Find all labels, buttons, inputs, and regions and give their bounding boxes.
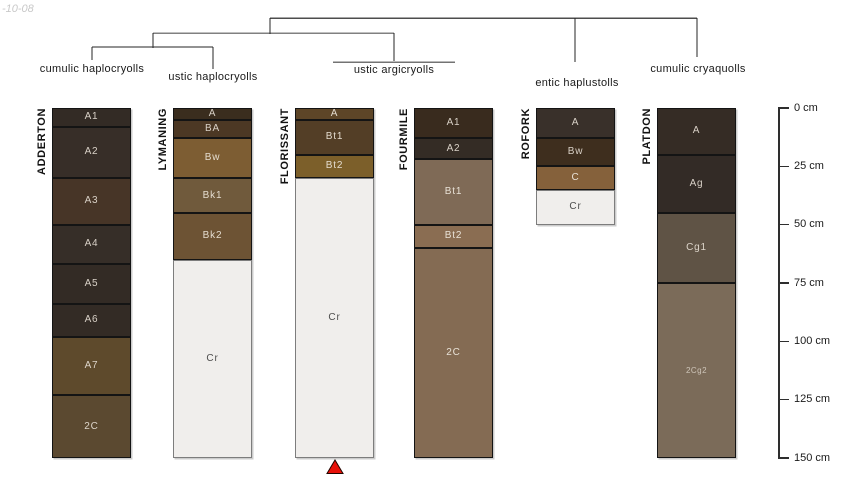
horizon-label: Bw (568, 147, 584, 157)
profile-column-lymaning: ABABwBk1Bk2Cr (173, 108, 252, 458)
horizon-label: 2Cg2 (686, 367, 707, 375)
profile-column-florissant: ABt1Bt2Cr (295, 108, 374, 458)
group-label-cumulic-cryaquolls: cumulic cryaquolls (650, 63, 745, 75)
horizon-label: Cr (569, 202, 581, 212)
group-label-ustic-haplocryolls: ustic haplocryolls (168, 71, 257, 83)
horizon-platdon-cg1: Cg1 (657, 213, 736, 283)
depth-tick (778, 107, 789, 109)
horizon-florissant-cr: Cr (295, 178, 374, 458)
depth-tick-label: 100 cm (794, 335, 830, 347)
group-label-cumulic-haplocryolls: cumulic haplocryolls (40, 63, 144, 75)
profile-name-adderton: ADDERTON (36, 108, 48, 175)
horizon-rofork-a: A (536, 108, 615, 138)
depth-tick-label: 50 cm (794, 218, 824, 230)
horizon-label: A1 (447, 118, 461, 128)
horizon-label: Bt1 (326, 132, 343, 142)
horizon-platdon-ag: Ag (657, 155, 736, 213)
horizon-lymaning-bk1: Bk1 (173, 178, 252, 213)
group-label-entic-haplustolls: entic haplustolls (535, 77, 618, 89)
horizon-label: A2 (85, 147, 99, 157)
horizon-label: C (571, 173, 579, 183)
depth-tick (778, 282, 789, 284)
horizon-fourmile-a1: A1 (414, 108, 493, 138)
horizon-label: A (693, 126, 700, 136)
horizon-florissant-a: A (295, 108, 374, 120)
depth-tick-label: 75 cm (794, 277, 824, 289)
horizon-label: 2C (446, 348, 460, 358)
horizon-label: Bk1 (203, 191, 223, 201)
profile-column-platdon: AAgCg12Cg2 (657, 108, 736, 458)
depth-tick (778, 341, 789, 343)
dendrogram (0, 0, 850, 100)
horizon-label: A5 (85, 279, 99, 289)
horizon-platdon-2cg2: 2Cg2 (657, 283, 736, 458)
depth-tick (778, 457, 789, 459)
depth-tick-label: 150 cm (794, 452, 830, 464)
red-triangle-marker (325, 458, 345, 475)
profile-column-adderton: A1A2A3A4A5A6A72C (52, 108, 131, 458)
horizon-label: A7 (85, 361, 99, 371)
horizon-label: A2 (447, 144, 461, 154)
profile-name-platdon: PLATDON (641, 108, 653, 165)
horizon-lymaning-cr: Cr (173, 260, 252, 458)
depth-tick (778, 399, 789, 401)
horizon-florissant-bt2: Bt2 (295, 155, 374, 178)
horizon-adderton-a6: A6 (52, 304, 131, 337)
horizon-label: Bk2 (203, 231, 223, 241)
horizon-rofork-bw: Bw (536, 138, 615, 166)
horizon-rofork-c: C (536, 166, 615, 189)
horizon-label: A (331, 109, 338, 119)
horizon-label: A (209, 109, 216, 119)
horizon-fourmile-bt1: Bt1 (414, 159, 493, 224)
horizon-label: BA (205, 124, 220, 134)
depth-tick-label: 25 cm (794, 160, 824, 172)
horizon-platdon-a: A (657, 108, 736, 155)
horizon-label: Bt2 (326, 161, 343, 171)
horizon-lymaning-a: A (173, 108, 252, 120)
profile-column-rofork: ABwCCr (536, 108, 615, 225)
horizon-label: A1 (85, 112, 99, 122)
horizon-label: Cr (206, 354, 218, 364)
horizon-adderton-a5: A5 (52, 264, 131, 304)
profile-column-fourmile: A1A2Bt1Bt22C (414, 108, 493, 458)
horizon-label: Bt1 (445, 187, 462, 197)
horizon-adderton-a3: A3 (52, 178, 131, 225)
horizon-adderton-a7: A7 (52, 337, 131, 395)
horizon-adderton-a1: A1 (52, 108, 131, 127)
profile-name-rofork: ROFORK (520, 108, 532, 159)
depth-tick (778, 166, 789, 168)
depth-tick-label: 125 cm (794, 393, 830, 405)
soil-profile-dendrogram-figure: -10-08 cumulic haplocryolls ustic haploc… (0, 0, 850, 500)
profile-name-florissant: FLORISSANT (279, 108, 291, 184)
horizon-label: Cr (328, 313, 340, 323)
horizon-adderton-a2: A2 (52, 127, 131, 178)
horizon-florissant-bt1: Bt1 (295, 120, 374, 155)
depth-tick (778, 224, 789, 226)
group-label-ustic-argicryolls: ustic argicryolls (354, 64, 434, 76)
horizon-fourmile-2c: 2C (414, 248, 493, 458)
horizon-label: A3 (85, 196, 99, 206)
horizon-label: Cg1 (686, 243, 707, 253)
horizon-lymaning-ba: BA (173, 120, 252, 139)
horizon-fourmile-bt2: Bt2 (414, 225, 493, 248)
horizon-rofork-cr: Cr (536, 190, 615, 225)
horizon-label: Bt2 (445, 231, 462, 241)
horizon-label: A (572, 118, 579, 128)
horizon-lymaning-bw: Bw (173, 138, 252, 178)
horizon-label: Ag (690, 179, 704, 189)
horizon-lymaning-bk2: Bk2 (173, 213, 252, 260)
horizon-adderton-2c: 2C (52, 395, 131, 458)
depth-tick-label: 0 cm (794, 102, 818, 114)
horizon-label: A4 (85, 239, 99, 249)
horizon-fourmile-a2: A2 (414, 138, 493, 159)
horizon-label: 2C (84, 422, 98, 432)
horizon-adderton-a4: A4 (52, 225, 131, 265)
profile-name-lymaning: LYMANING (157, 108, 169, 170)
profile-name-fourmile: FOURMILE (398, 108, 410, 170)
horizon-label: Bw (205, 153, 221, 163)
horizon-label: A6 (85, 315, 99, 325)
